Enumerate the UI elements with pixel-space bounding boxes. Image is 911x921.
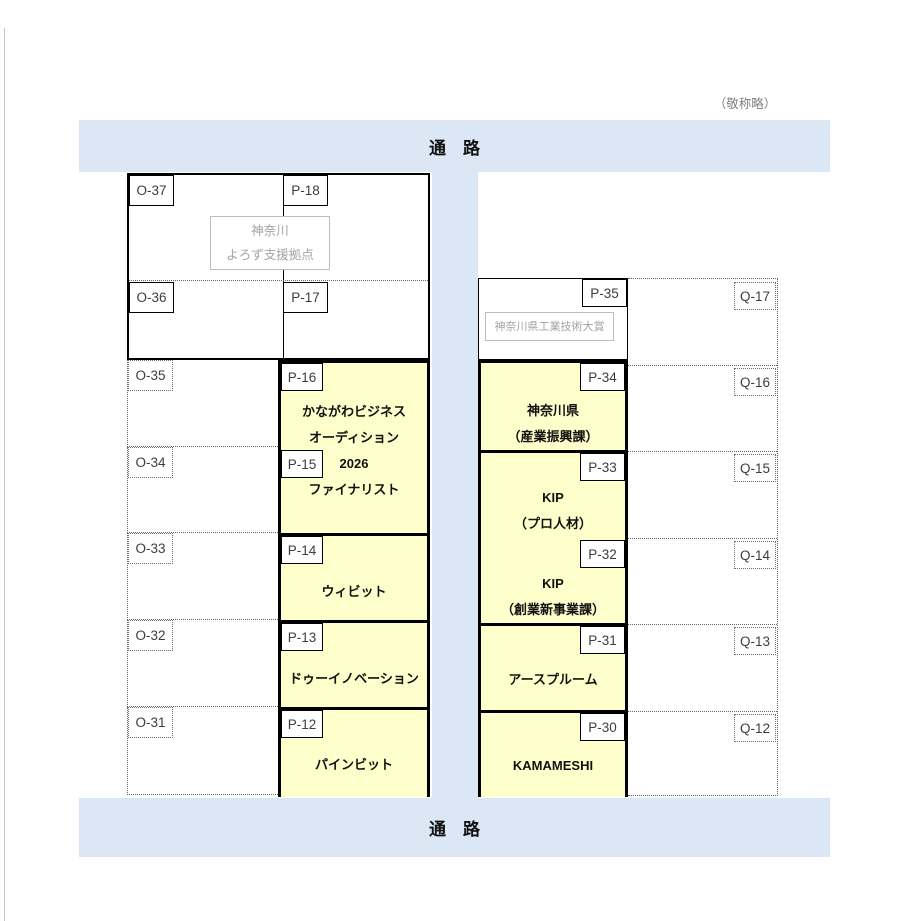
booth-p16-line2: オーディション	[281, 425, 427, 451]
booth-label-o35: O-35	[128, 360, 173, 391]
floor-plan: （敬称略） 通 路 通 路 O-37 P-18 O-36 P-17 神奈川 よろ…	[0, 0, 911, 921]
booth-label-p34: P-34	[580, 363, 625, 391]
aisle-bottom-label: 通 路	[429, 815, 480, 840]
divider-q17-q16	[628, 365, 777, 366]
booth-label-p31: P-31	[580, 626, 625, 654]
block-o37-p17: O-37 P-18 O-36 P-17 神奈川 よろず支援拠点	[127, 173, 430, 360]
booth-label-o34: O-34	[128, 447, 173, 478]
divider-q13-q12	[628, 711, 777, 712]
cell-o35: O-35	[127, 360, 278, 447]
booth-label-q17: Q-17	[734, 282, 776, 310]
support-center-box: 神奈川 よろず支援拠点	[210, 216, 330, 270]
o-column: O-35 O-34 O-33 O-32 O-31	[127, 360, 278, 795]
booth-p32-name: KIP （創業新事業課）	[481, 571, 625, 623]
booth-p33-line1: KIP	[481, 485, 625, 511]
booth-label-o31: O-31	[128, 707, 173, 738]
booth-p31-name: アースプルーム	[481, 667, 625, 693]
q-column: Q-17 Q-16 Q-15 Q-14 Q-13 Q-12	[628, 278, 778, 796]
cell-p35: P-35 神奈川県工業技術大賞	[478, 278, 628, 360]
divider-q16-q15	[628, 451, 777, 452]
booth-p34-line2: （産業振興課）	[481, 424, 625, 450]
booth-p16-p15-name: かながわビジネス オーディション 2026 ファイナリスト	[281, 399, 427, 503]
booth-p16-line4: ファイナリスト	[281, 477, 427, 503]
booth-label-p30: P-30	[580, 713, 625, 741]
booth-label-p13: P-13	[281, 623, 323, 651]
booth-label-o36: O-36	[129, 282, 174, 313]
booth-label-o37: O-37	[129, 175, 174, 206]
booth-label-p32: P-32	[580, 540, 625, 568]
booth-label-o32: O-32	[128, 620, 173, 651]
booth-label-q16: Q-16	[734, 368, 776, 396]
booth-label-p33: P-33	[580, 453, 625, 481]
booth-p34-name: 神奈川県 （産業振興課）	[481, 398, 625, 450]
page-edge-line	[4, 28, 5, 921]
support-center-line1: 神奈川	[251, 219, 289, 243]
booth-block-p-left: P-16 P-15 P-14 P-13 P-12 かながわビジネス オーディショ…	[278, 360, 430, 797]
booth-label-p35: P-35	[582, 279, 627, 307]
booth-label-p16: P-16	[281, 363, 323, 391]
aisle-top: 通 路	[79, 120, 830, 172]
award-box-label: 神奈川県工業技術大賞	[495, 315, 605, 339]
booth-block-p-right: P-34 P-33 P-32 P-31 P-30 神奈川県 （産業振興課） KI…	[478, 360, 628, 797]
honorific-note: （敬称略）	[695, 93, 795, 112]
booth-p33-line2: （プロ人材）	[481, 511, 625, 537]
aisle-bottom: 通 路	[79, 798, 830, 857]
booth-p13-name: ドゥーイノベーション	[281, 666, 427, 692]
booth-label-q13: Q-13	[734, 627, 776, 655]
cell-o33: O-33	[127, 533, 278, 620]
booth-label-q14: Q-14	[734, 541, 776, 569]
booth-label-p18: P-18	[283, 175, 328, 206]
booth-label-p17: P-17	[283, 282, 328, 313]
booth-p34-line1: 神奈川県	[481, 398, 625, 424]
aisle-vertical	[432, 172, 478, 798]
booth-label-q12: Q-12	[734, 714, 776, 742]
booth-p32-line1: KIP	[481, 571, 625, 597]
support-center-line2: よろず支援拠点	[226, 243, 314, 267]
booth-label-p12: P-12	[281, 710, 323, 738]
divider-q14-q13	[628, 624, 777, 625]
cell-o31: O-31	[127, 707, 278, 795]
booth-p32-line2: （創業新事業課）	[481, 597, 625, 623]
booth-p12-name: パインビット	[281, 752, 427, 778]
booth-p14-name: ウィビット	[281, 579, 427, 605]
divider-q15-q14	[628, 538, 777, 539]
booth-p16-line1: かながわビジネス	[281, 399, 427, 425]
aisle-top-label: 通 路	[429, 134, 480, 159]
booth-p30-name: KAMAMESHI	[481, 753, 625, 779]
booth-label-p14: P-14	[281, 536, 323, 564]
booth-label-o33: O-33	[128, 533, 173, 564]
booth-p16-line3: 2026	[281, 451, 427, 477]
award-box: 神奈川県工業技術大賞	[485, 312, 614, 341]
booth-label-q15: Q-15	[734, 454, 776, 482]
block-horizontal-divider	[129, 280, 428, 281]
cell-o32: O-32	[127, 620, 278, 707]
cell-o34: O-34	[127, 447, 278, 533]
booth-p33-name: KIP （プロ人材）	[481, 485, 625, 537]
